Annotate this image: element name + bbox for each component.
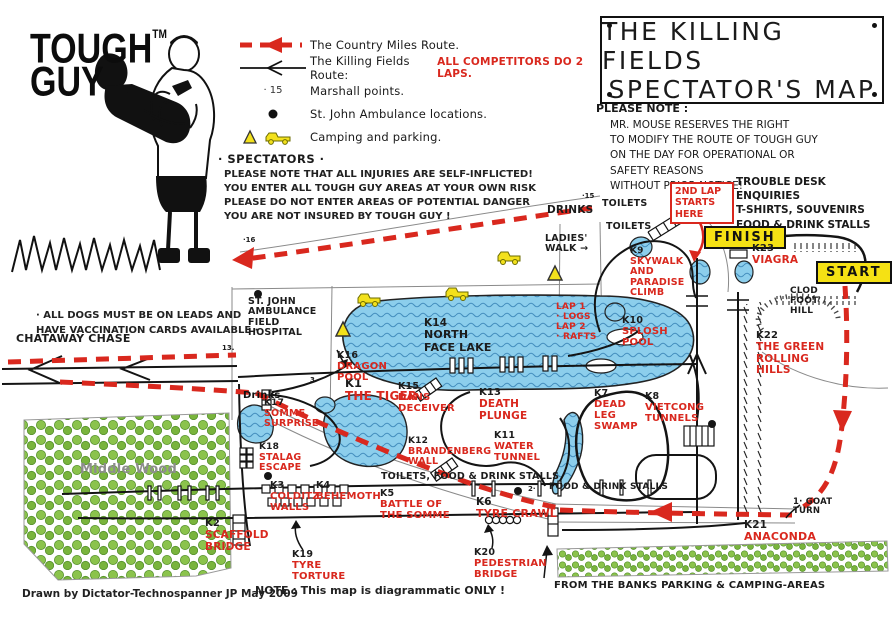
title-corner-dot [607,92,612,97]
map-title-line2: SPECTATOR'S MAP [609,75,876,104]
title-corner-dot [872,23,877,28]
country-miles-route-icon [236,36,310,54]
logo-line2: GUY [30,64,223,100]
trouble-desk-block: TROUBLE DESK ENQUIRIES T-SHIRTS, SOUVENI… [736,175,892,232]
spectators-heading: · SPECTATORS · [218,152,598,166]
middle-wood-area [24,413,231,580]
killing-fields-route-icon [236,59,310,77]
finish-badge: FINISH [704,226,786,249]
legend-killing-fields-note: ALL COMPETITORS DO 2 LAPS. [437,56,596,80]
map-title-line1: THE KILLING FIELDS [602,17,882,75]
grass-decoration [12,236,160,272]
legend-killing-fields: The Killing Fields Route: ALL COMPETITOR… [236,56,596,79]
legend-marshall: · 15 Marshall points. [236,79,596,102]
legend-camping-label: Camping and parking. [310,130,441,144]
legend-country-miles-label: The Country Miles Route. [310,38,459,52]
legend-ambulance: St. John Ambulance locations. [236,102,596,125]
diagrammatic-note: NOTE : This map is diagrammatic ONLY ! [255,584,505,597]
ambulance-dot-icon [236,107,310,121]
legend-camping: Camping and parking. [236,125,596,148]
start-badge: START [816,261,892,284]
dogs-note: · ALL DOGS MUST BE ON LEADS AND HAVE VAC… [36,308,266,338]
north-face-lake [343,295,694,390]
tough-guy-logo: TOUGHTM GUY [30,30,240,96]
spectators-map-canvas: TOUGHTM GUY The Country Miles Route. The… [0,0,892,630]
map-legend: The Country Miles Route. The Killing Fie… [236,33,596,148]
title-corner-dot [872,92,877,97]
somme-surprise-pool [238,405,274,443]
map-title-box: THE KILLING FIELDS SPECTATOR'S MAP [600,16,884,104]
spectators-block: · SPECTATORS · PLEASE NOTE THAT ALL INJU… [218,152,598,224]
please-note-heading: PLEASE NOTE : [596,102,826,115]
legend-killing-fields-label: The Killing Fields Route: [310,54,432,82]
second-lap-badge: 2ND LAP STARTS HERE [670,182,734,224]
legend-marshall-label: Marshall points. [310,84,404,98]
logo-trademark: TM [152,28,167,41]
camping-parking-icon [236,128,310,146]
spectators-text: PLEASE NOTE THAT ALL INJURIES ARE SELF-I… [224,168,598,224]
title-corner-dot [607,23,612,28]
legend-ambulance-label: St. John Ambulance locations. [310,107,487,121]
bottom-tree-belt [557,541,888,577]
marshall-point-icon: · 15 [236,85,310,96]
